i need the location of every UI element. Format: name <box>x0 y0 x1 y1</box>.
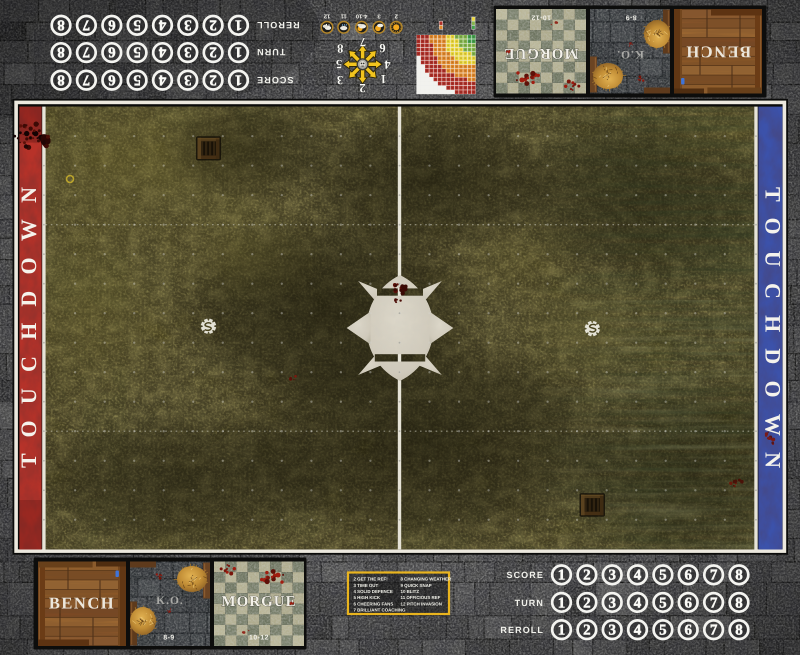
svg-text:5 HIGH KICK: 5 HIGH KICK <box>354 595 381 600</box>
svg-text:K.O.: K.O. <box>156 595 184 607</box>
svg-text:3 TIME OUT: 3 TIME OUT <box>354 583 379 588</box>
svg-text:4: 4 <box>634 595 642 611</box>
svg-text:11: 11 <box>340 13 347 19</box>
svg-text:7: 7 <box>710 623 718 639</box>
svg-text:4-10: 4-10 <box>356 13 368 20</box>
svg-text:8: 8 <box>735 623 743 639</box>
svg-text:2: 2 <box>583 623 591 639</box>
svg-text:3: 3 <box>337 73 343 87</box>
svg-text:6 CHEERING FANS: 6 CHEERING FANS <box>354 601 394 606</box>
svg-text:7: 7 <box>710 568 718 584</box>
svg-text:MORGUE: MORGUE <box>221 594 296 610</box>
svg-text:SCORE: SCORE <box>506 570 544 580</box>
svg-text:3: 3 <box>608 595 616 611</box>
svg-text:10 BLITZ: 10 BLITZ <box>401 589 420 594</box>
svg-text:1: 1 <box>380 72 386 86</box>
svg-text:5: 5 <box>659 623 667 639</box>
svg-text:5: 5 <box>336 57 342 71</box>
svg-text:TURN: TURN <box>515 598 544 608</box>
svg-text:1: 1 <box>558 568 566 584</box>
svg-text:3: 3 <box>608 623 616 639</box>
svg-text:12 PITCH INVASION: 12 PITCH INVASION <box>401 601 442 606</box>
svg-text:8 CHANGING WEATHER: 8 CHANGING WEATHER <box>401 577 452 582</box>
svg-text:TOUCHDOWN: TOUCHDOWN <box>761 187 786 468</box>
svg-text:7: 7 <box>360 35 366 49</box>
svg-text:REROLL: REROLL <box>500 625 544 635</box>
svg-text:7: 7 <box>710 595 718 611</box>
svg-text:2: 2 <box>395 13 398 20</box>
svg-text:2: 2 <box>583 595 591 611</box>
svg-text:8-9: 8-9 <box>163 635 174 642</box>
svg-text:1: 1 <box>558 623 566 639</box>
svg-text:4 SOLID DEFENCE: 4 SOLID DEFENCE <box>354 589 393 594</box>
svg-text:5: 5 <box>659 568 667 584</box>
svg-text:5: 5 <box>659 595 667 611</box>
svg-text:3: 3 <box>608 568 616 584</box>
svg-text:TOUCHDOWN: TOUCHDOWN <box>16 187 41 468</box>
svg-text:4: 4 <box>634 568 642 584</box>
svg-text:8: 8 <box>735 595 743 611</box>
svg-text:6: 6 <box>379 41 385 55</box>
svg-text:11 OFFICIOUS REF: 11 OFFICIOUS REF <box>401 595 441 600</box>
svg-text:8: 8 <box>337 42 343 56</box>
svg-text:10-12: 10-12 <box>249 635 269 642</box>
svg-text:BENCH: BENCH <box>49 594 115 613</box>
svg-text:2 GET THE REF!: 2 GET THE REF! <box>354 577 389 582</box>
svg-text:4: 4 <box>634 623 642 639</box>
svg-text:7 BRILLIANT COACHING: 7 BRILLIANT COACHING <box>354 608 407 613</box>
svg-text:2: 2 <box>583 568 591 584</box>
svg-text:8: 8 <box>735 568 743 584</box>
svg-text:2: 2 <box>359 81 365 95</box>
svg-text:9 QUICK SNAP: 9 QUICK SNAP <box>401 583 432 588</box>
svg-text:6: 6 <box>684 623 692 639</box>
svg-text:6: 6 <box>684 568 692 584</box>
svg-text:1: 1 <box>558 595 566 611</box>
svg-text:6: 6 <box>684 595 692 611</box>
svg-text:12: 12 <box>324 13 330 20</box>
svg-text:4: 4 <box>384 57 391 71</box>
